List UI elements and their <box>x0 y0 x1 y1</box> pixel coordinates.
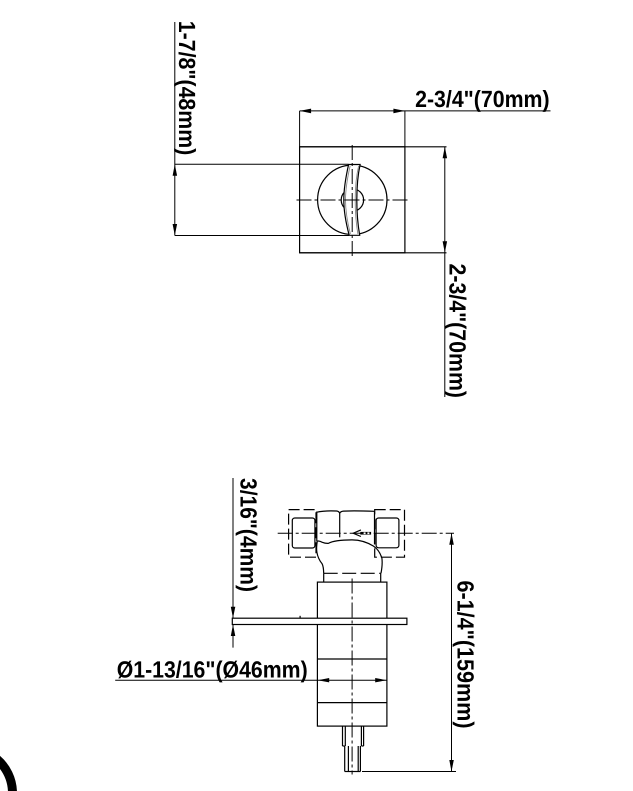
svg-text:Ø1-13/16"(Ø46mm): Ø1-13/16"(Ø46mm) <box>117 656 308 682</box>
svg-text:1-7/8"(48mm): 1-7/8"(48mm) <box>174 21 200 156</box>
svg-text:2-3/4"(70mm): 2-3/4"(70mm) <box>415 86 549 112</box>
svg-text:6-1/4"(159mm): 6-1/4"(159mm) <box>453 581 479 729</box>
svg-text:2-3/4"(70mm): 2-3/4"(70mm) <box>444 264 470 399</box>
svg-text:3/16"(4mm): 3/16"(4mm) <box>236 478 262 592</box>
